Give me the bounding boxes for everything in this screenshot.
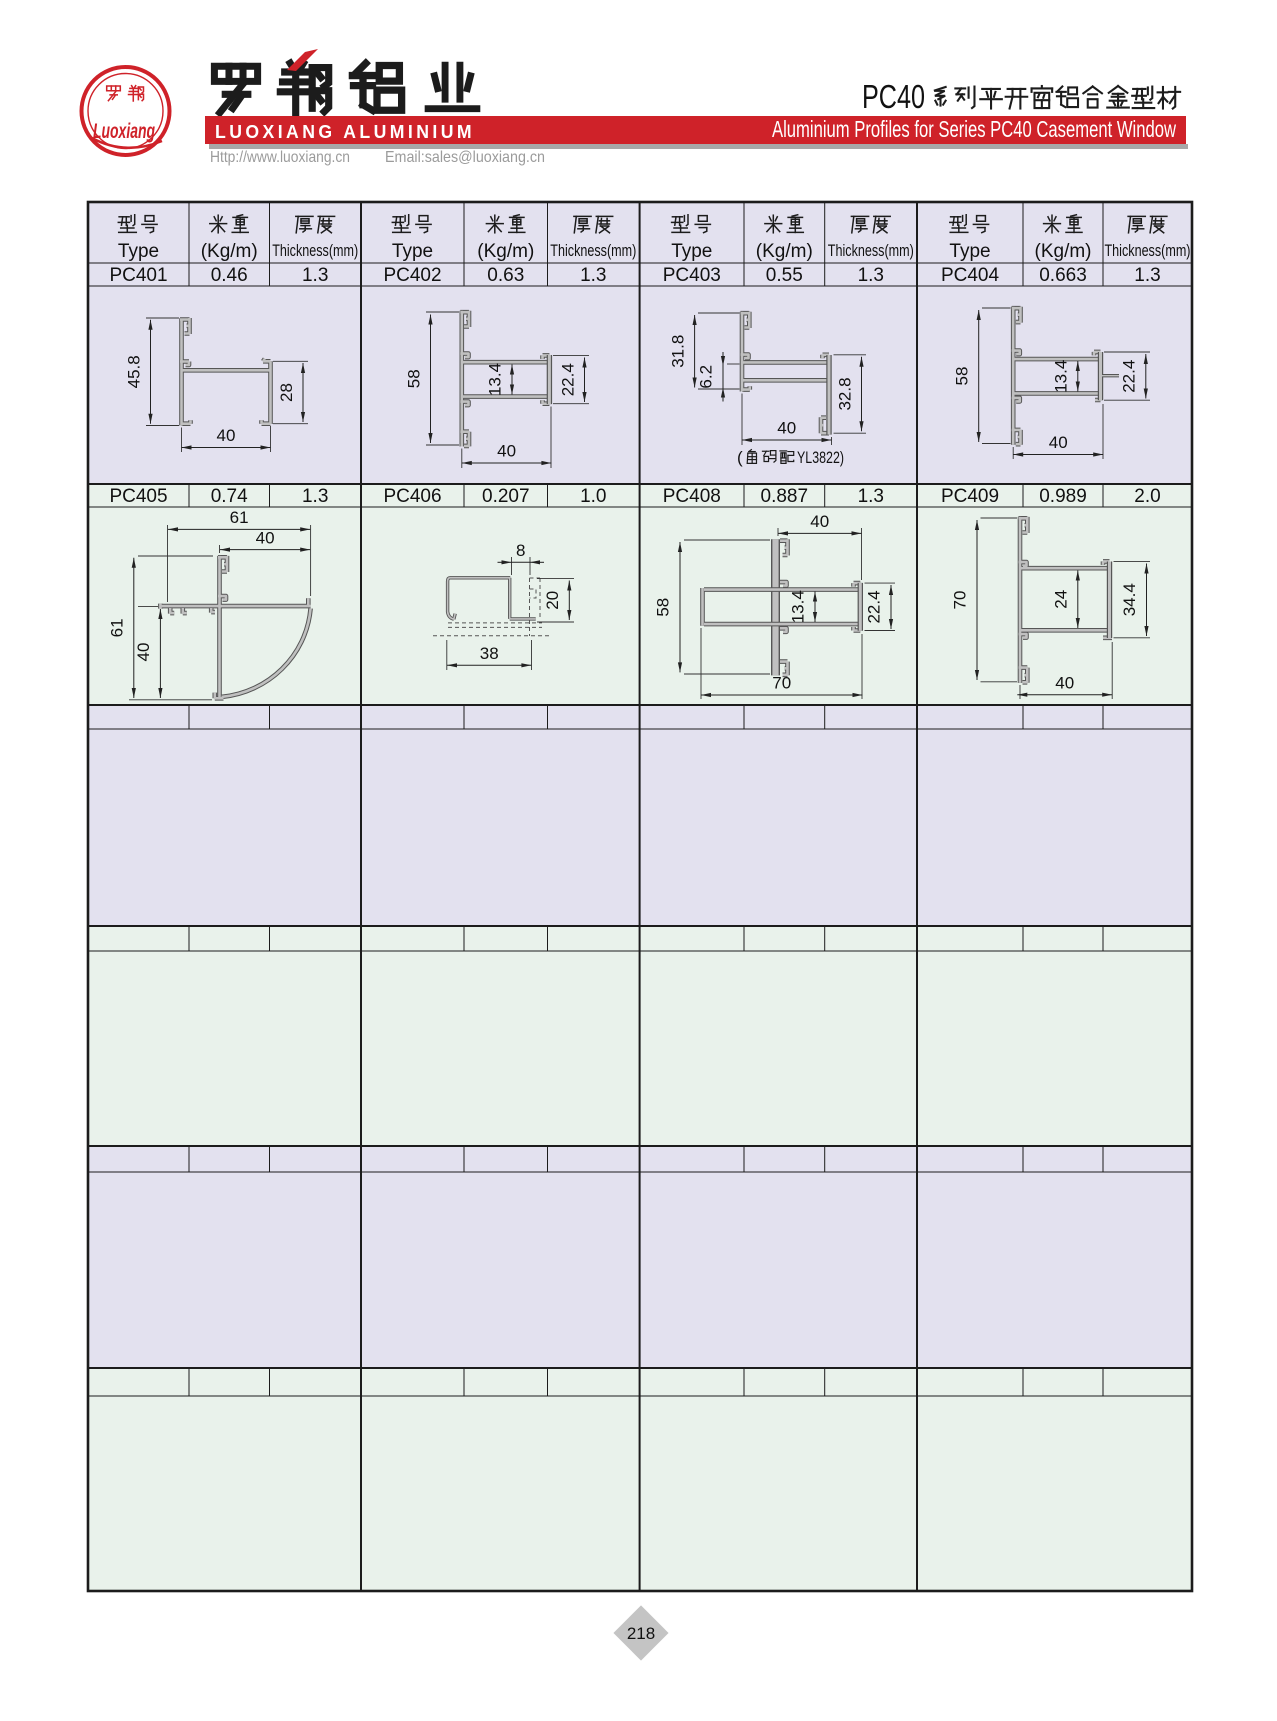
svg-text:(Kg/m): (Kg/m) [1035,241,1092,262]
svg-text:32.8: 32.8 [836,377,855,410]
svg-text:1.3: 1.3 [858,265,884,286]
svg-text:1.3: 1.3 [302,486,328,507]
svg-text:22.4: 22.4 [559,363,578,396]
svg-text:(Kg/m): (Kg/m) [756,241,813,262]
svg-text:70: 70 [772,674,791,693]
svg-text:Aluminium Profiles for Series: Aluminium Profiles for Series PC40 Casem… [772,116,1176,142]
svg-text:28: 28 [277,383,296,402]
svg-text:40: 40 [217,426,236,445]
svg-text:40: 40 [777,419,796,438]
svg-text:0.663: 0.663 [1039,265,1087,286]
svg-text:Luoxiang: Luoxiang [93,120,155,143]
svg-text:0.887: 0.887 [761,486,809,507]
svg-text:Type: Type [949,241,990,262]
svg-text:(Kg/m): (Kg/m) [201,241,258,262]
svg-text:34.4: 34.4 [1120,583,1139,616]
svg-text:40: 40 [810,512,829,531]
svg-text:40: 40 [1055,673,1074,692]
svg-text:8: 8 [516,541,525,560]
svg-text:PC406: PC406 [383,486,441,507]
svg-text:31.8: 31.8 [669,335,688,368]
svg-text:22.4: 22.4 [865,590,884,623]
svg-text:61: 61 [107,618,126,637]
svg-text:1.0: 1.0 [580,486,606,507]
svg-text:Thickness(mm): Thickness(mm) [550,242,636,260]
svg-text:Http://www.luoxiang.cn: Http://www.luoxiang.cn [210,149,350,166]
svg-text:Type: Type [118,241,159,262]
svg-text:1.3: 1.3 [1134,265,1160,286]
svg-text:PC401: PC401 [109,265,167,286]
svg-text:61: 61 [230,508,249,527]
svg-text:40: 40 [497,442,516,461]
svg-text:1.3: 1.3 [858,486,884,507]
svg-text:38: 38 [480,644,499,663]
svg-text:70: 70 [951,591,970,610]
svg-text:PC405: PC405 [109,486,167,507]
svg-text:0.207: 0.207 [482,486,530,507]
svg-text:2.0: 2.0 [1134,486,1160,507]
svg-text:0.55: 0.55 [766,265,803,286]
svg-text:YL3822): YL3822) [797,448,844,467]
svg-text:Thickness(mm): Thickness(mm) [272,242,358,260]
svg-text:Type: Type [671,241,712,262]
svg-text:0.63: 0.63 [487,265,524,286]
svg-text:LUOXIANG ALUMINIUM: LUOXIANG ALUMINIUM [215,122,475,142]
svg-text:13.4: 13.4 [486,363,505,396]
svg-text:22.4: 22.4 [1119,360,1138,393]
svg-text:Thickness(mm): Thickness(mm) [828,242,914,260]
svg-text:13.4: 13.4 [789,590,808,623]
svg-text:58: 58 [654,598,673,617]
svg-text:PC409: PC409 [941,486,999,507]
svg-text:Email:sales@luoxiang.cn: Email:sales@luoxiang.cn [385,149,545,166]
svg-text:0.46: 0.46 [211,265,248,286]
svg-text:PC40: PC40 [862,78,925,115]
svg-text:13.4: 13.4 [1051,360,1070,393]
svg-text:1.3: 1.3 [580,265,606,286]
svg-text:Thickness(mm): Thickness(mm) [1105,242,1191,260]
svg-text:1.3: 1.3 [302,265,328,286]
svg-text:PC408: PC408 [663,486,721,507]
svg-text:Type: Type [392,241,433,262]
svg-text:218: 218 [627,1624,655,1643]
svg-text:45.8: 45.8 [125,355,144,388]
svg-text:58: 58 [953,367,972,386]
svg-text:40: 40 [256,529,275,548]
svg-text:24: 24 [1051,590,1070,609]
svg-text:40: 40 [1049,433,1068,452]
svg-text:PC402: PC402 [383,265,441,286]
svg-text:(: ( [737,448,743,467]
svg-text:6.2: 6.2 [697,365,716,389]
svg-text:20: 20 [543,591,562,610]
svg-text:(Kg/m): (Kg/m) [477,241,534,262]
svg-text:58: 58 [405,369,424,388]
svg-text:PC404: PC404 [941,265,1000,286]
svg-text:PC403: PC403 [663,265,721,286]
svg-text:40: 40 [134,643,153,662]
svg-text:0.989: 0.989 [1039,486,1087,507]
svg-text:0.74: 0.74 [211,486,248,507]
